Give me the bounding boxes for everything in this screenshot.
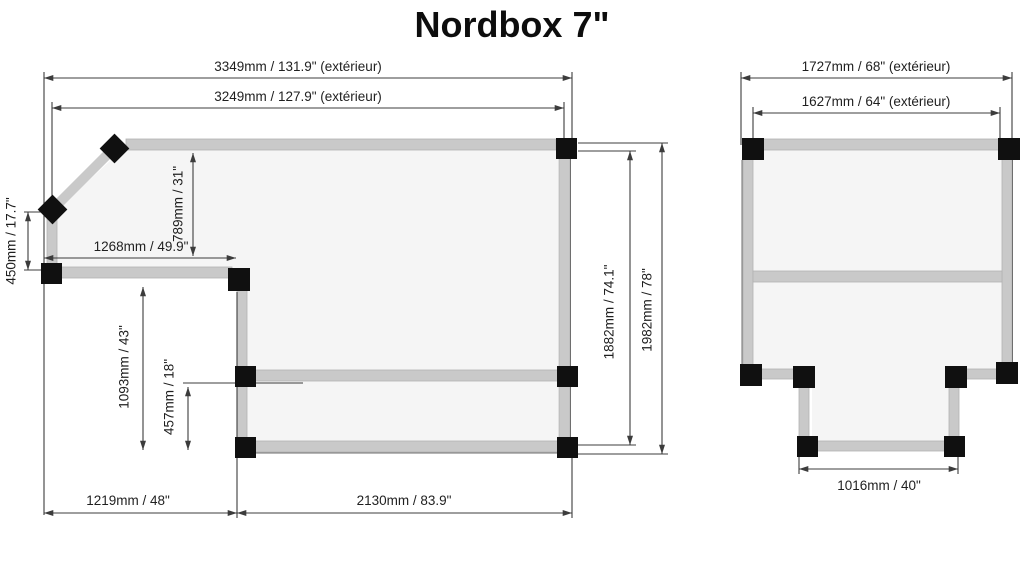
tab-bottom-left-connector [797, 436, 818, 457]
step-rail [58, 267, 232, 278]
bottom-right-connector [557, 437, 578, 458]
top-right-connector [998, 138, 1020, 160]
left-rail [743, 150, 753, 372]
dim-label-bottom-right: 2130mm / 83.9" [357, 493, 452, 508]
top-rail [745, 139, 1010, 150]
tab-left-rail [799, 387, 809, 438]
dim-label-bottom-tab: 1016mm / 40" [837, 478, 921, 493]
mid-outer-right-connector [996, 362, 1018, 384]
right-rail [559, 157, 570, 438]
middle-rail [753, 271, 1002, 282]
tab-right-rail [949, 387, 959, 438]
drawing-canvas: 3349mm / 131.9" (extérieur) 3249mm / 127… [0, 0, 1024, 576]
dim-label-top-outer: 1727mm / 68" (extérieur) [802, 59, 951, 74]
mid-inner-left-connector [793, 366, 815, 388]
dim-label-left-height: 450mm / 17.7" [4, 197, 19, 285]
dim-label-notch-height: 1093mm / 43" [117, 325, 132, 409]
tab-bottom-rail [809, 441, 950, 451]
mid-left-connector [235, 366, 256, 387]
dim-label-lower-interior: 457mm / 18" [162, 359, 177, 435]
right-stub-rail [965, 369, 998, 379]
mid-inner-right-connector [945, 366, 967, 388]
dim-bottom-left-width: 1219mm / 48" [44, 292, 237, 518]
dim-label-top-inner: 1627mm / 64" (extérieur) [802, 94, 951, 109]
dim-label-top-outer: 3349mm / 131.9" (extérieur) [214, 59, 382, 74]
middle-rail [255, 370, 558, 381]
step-left-connector [41, 263, 62, 284]
mid-outer-left-connector [740, 364, 762, 386]
dim-label-right-inner: 1882mm / 74.1" [602, 264, 617, 359]
right-rail [1002, 150, 1012, 370]
dim-notch-height: 1093mm / 43" [117, 287, 143, 450]
dim-bottom-tab-width: 1016mm / 40" [799, 457, 958, 493]
dim-right-outer-height: 1982mm / 78" [578, 143, 668, 454]
mid-right-connector [557, 366, 578, 387]
dim-label-upper-interior: 789mm / 31" [171, 166, 186, 242]
left-stub-rail [760, 369, 795, 379]
top-left-connector [742, 138, 764, 160]
dim-right-inner-height: 1882mm / 74.1" [578, 151, 636, 445]
dim-label-bottom-left: 1219mm / 48" [86, 493, 170, 508]
dim-label-right-outer: 1982mm / 78" [640, 268, 655, 352]
technical-drawing-page: Nordbox 7" 3349m [0, 0, 1024, 576]
dim-label-step-width: 1268mm / 49.9" [94, 239, 189, 254]
bottom-rail [255, 441, 558, 452]
secondary-frame-diagram: 1727mm / 68" (extérieur) 1627mm / 64" (e… [740, 59, 1020, 493]
dim-bottom-right-width: 2130mm / 83.9" [237, 443, 572, 518]
dim-top-inner: 1627mm / 64" (extérieur) [753, 94, 1000, 145]
bottom-left-connector [235, 437, 256, 458]
notch-vertical-rail [237, 290, 247, 438]
top-right-connector [556, 138, 577, 159]
step-inner-connector [228, 268, 250, 291]
tab-bottom-right-connector [944, 436, 965, 457]
top-rail [126, 139, 556, 150]
main-frame-diagram: 3349mm / 131.9" (extérieur) 3249mm / 127… [4, 59, 668, 518]
secondary-frame-interior [753, 150, 1002, 441]
dim-label-top-inner: 3249mm / 127.9" (extérieur) [214, 89, 382, 104]
